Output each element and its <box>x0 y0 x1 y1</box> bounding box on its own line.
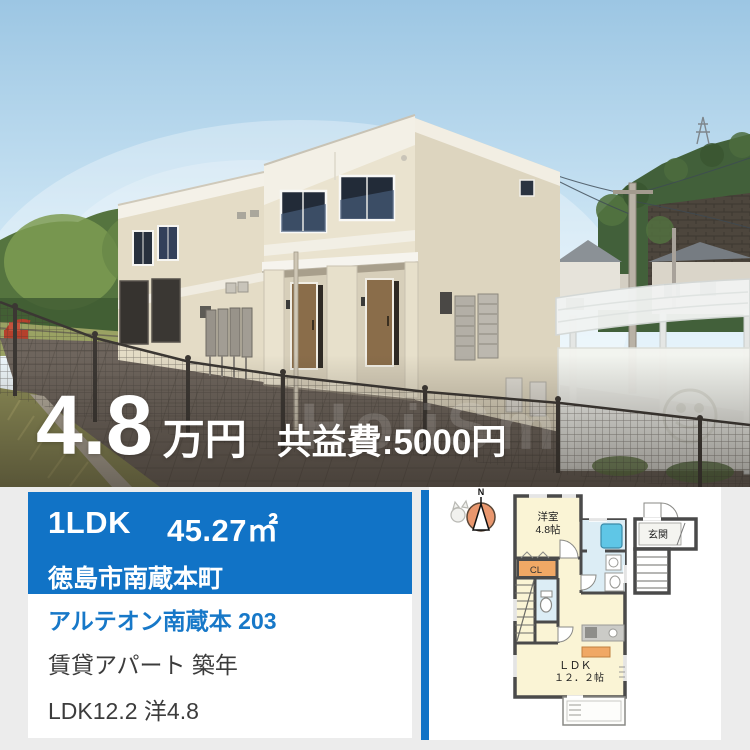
summary-banner: 1LDK 45.27㎡ 徳島市南蔵本町 <box>28 492 412 594</box>
price-unit: 万円 <box>163 406 247 467</box>
area-label: 45.27㎡ <box>167 505 279 550</box>
address-label: 徳島市南蔵本町 <box>48 559 412 595</box>
property-listing: HoüSm 4.8 万円 共益費:5000円 1LDK 45.27㎡ 徳島市南蔵… <box>0 0 750 750</box>
price-value: 4.8 <box>36 388 153 464</box>
western-room-label: 洋室 <box>538 510 559 523</box>
balcony <box>563 697 625 725</box>
property-photo[interactable]: HoüSm 4.8 万円 共益費:5000円 <box>0 0 750 487</box>
floorplan-drawing: N <box>429 487 721 740</box>
closet-label: CL <box>530 565 542 576</box>
maintenance-fee: 共益費:5000円 <box>277 414 507 465</box>
property-name-link[interactable]: アルテオン南蔵本 203 <box>48 610 400 633</box>
listing-info: 1LDK 45.27㎡ 徳島市南蔵本町 アルテオン南蔵本 203 賃貸アパート … <box>0 487 750 750</box>
ldk-size: １２．２帖 <box>554 671 604 684</box>
summary-card: 1LDK 45.27㎡ 徳島市南蔵本町 アルテオン南蔵本 203 賃貸アパート … <box>28 492 412 738</box>
floorplan[interactable]: N <box>429 487 721 740</box>
divider-bar <box>421 490 429 740</box>
property-type: 賃貸アパート 築年 <box>48 646 400 680</box>
room-breakdown: LDK12.2 洋4.8 <box>48 692 400 726</box>
western-room-size: 4.8帖 <box>535 523 561 536</box>
entrance-label: 玄関 <box>648 528 668 541</box>
compass-n-label: N <box>478 487 485 497</box>
price-overlay: 4.8 万円 共益費:5000円 <box>36 388 506 467</box>
ldk-label: ＬＤＫ <box>559 660 592 672</box>
layout-label: 1LDK <box>48 505 131 550</box>
